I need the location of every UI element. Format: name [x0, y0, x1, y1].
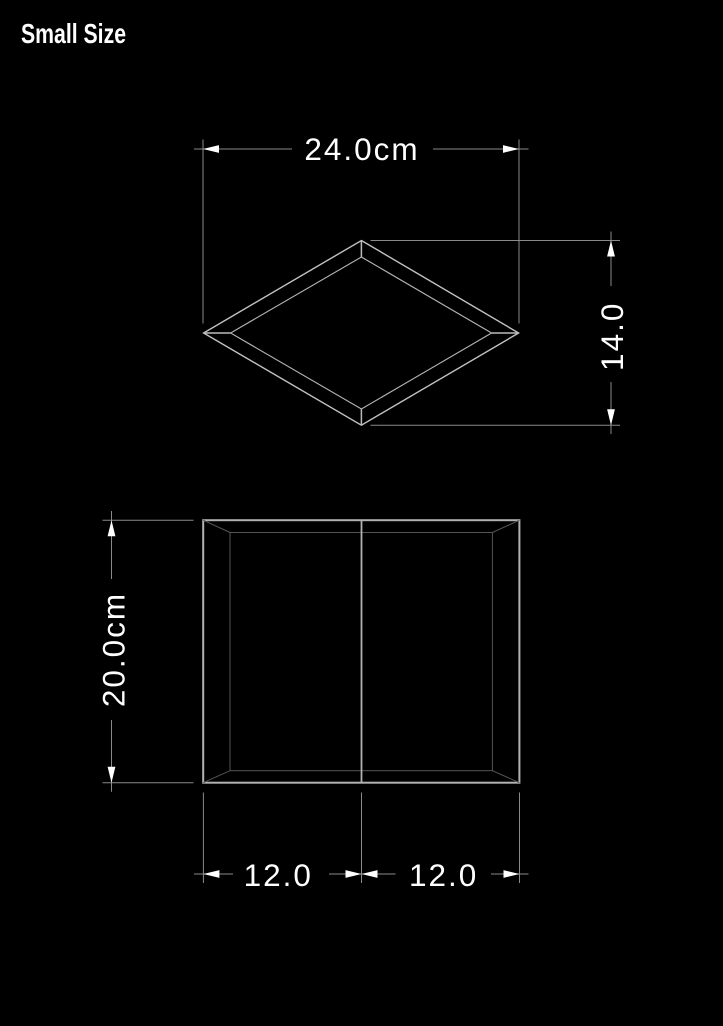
svg-text:24.0cm: 24.0cm — [304, 131, 419, 167]
svg-text:14.0: 14.0 — [594, 302, 630, 371]
svg-text:12.0: 12.0 — [409, 857, 478, 893]
svg-text:12.0: 12.0 — [244, 857, 313, 893]
svg-text:Small Size: Small Size — [21, 18, 126, 49]
svg-text:20.0cm: 20.0cm — [96, 592, 132, 707]
